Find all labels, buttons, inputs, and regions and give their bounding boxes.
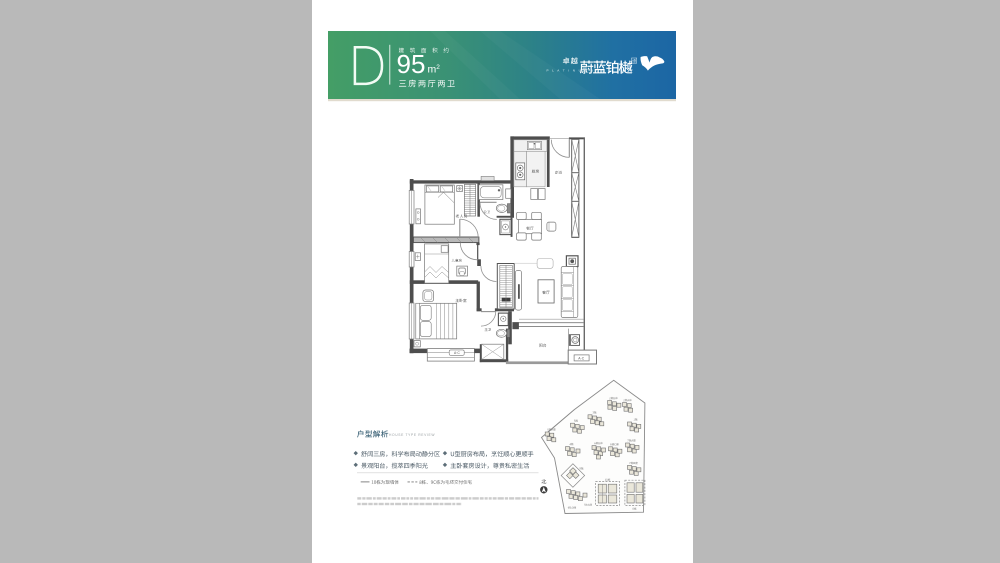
svg-text:HOUSE TYPE REVIEW: HOUSE TYPE REVIEW bbox=[389, 433, 435, 437]
svg-text:95: 95 bbox=[397, 49, 426, 79]
svg-text:A·C: A·C bbox=[578, 357, 584, 361]
svg-text:A·C: A·C bbox=[454, 351, 460, 355]
